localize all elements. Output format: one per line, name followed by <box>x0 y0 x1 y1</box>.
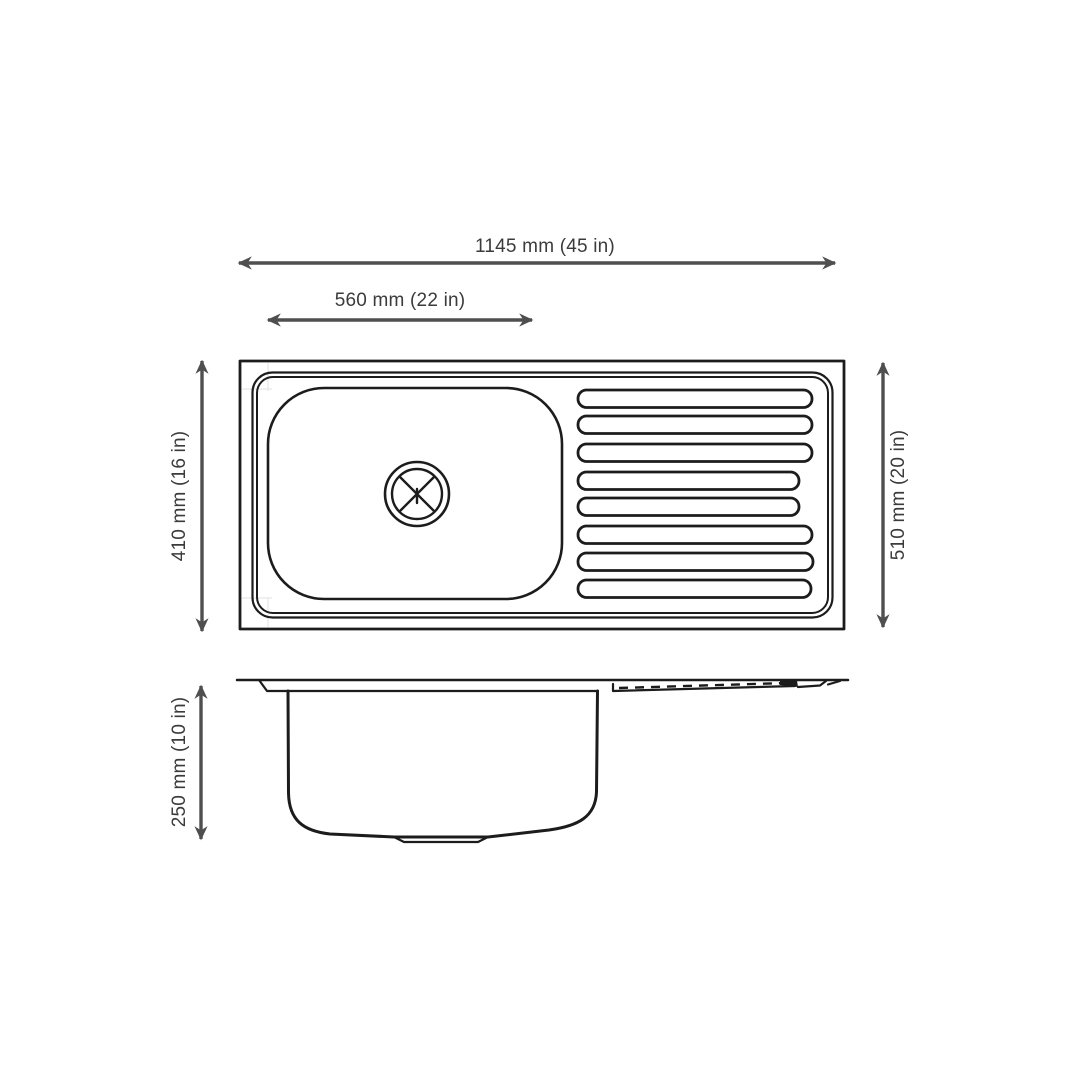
dim-label-left-height: 410 mm (16 in) <box>169 431 191 562</box>
side-bowl-profile <box>288 691 598 837</box>
dim-label-bowl-depth: 250 mm (10 in) <box>169 697 191 828</box>
sink-side-view <box>237 680 848 842</box>
side-drainboard-profile <box>613 681 840 692</box>
dim-label-overall-width: 1145 mm (45 in) <box>475 236 615 258</box>
dim-label-right-height: 510 mm (20 in) <box>888 430 910 561</box>
dimension-arrows <box>201 263 883 839</box>
drain-icon <box>385 462 449 526</box>
sink-technical-drawing: 1145 mm (45 in) 560 mm (22 in) 410 mm (1… <box>0 0 1080 1080</box>
drawing-canvas <box>0 0 1080 1080</box>
drainboard-ribs <box>578 390 813 598</box>
dim-label-bowl-width: 560 mm (22 in) <box>335 290 466 312</box>
sink-rim-inner <box>257 377 828 613</box>
sink-top-view <box>240 361 844 629</box>
side-rim-underside <box>259 680 598 691</box>
